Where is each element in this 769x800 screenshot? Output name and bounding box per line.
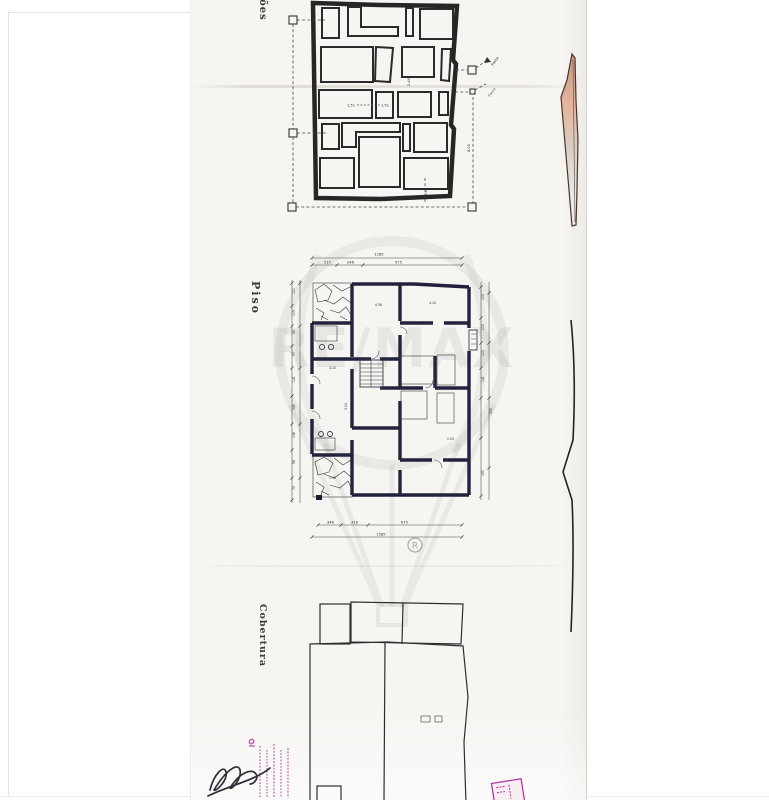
svg-text:123: 123 [481,350,485,356]
svg-text:156: 156 [292,432,296,438]
room-dim-5: 3.04 [344,403,348,410]
page-frame-left [8,10,9,797]
foundation-dim-vertical: 8.00 [467,143,471,152]
room-dim-1: 4.10 [329,366,336,370]
stamp-box-right [488,778,532,800]
fixtures-bottom-left [315,432,335,451]
svg-text:98: 98 [292,460,296,464]
floor-dim-bottom-1: 348 [327,521,335,525]
floor-dims-right: 105 115 123 141 595 163 [481,294,493,476]
speckle-hatch-1 [437,355,455,385]
stone-hatch-top-left [313,283,352,322]
svg-text:75: 75 [292,486,296,490]
floor-dims-left: 122 113 45 97 141 240 156 98 75 [292,288,296,490]
pergola-grid [320,604,350,644]
foundation-dim-small-bottom: 2.40 [424,187,428,196]
svg-text:97: 97 [292,352,296,356]
svg-text:122: 122 [292,288,296,294]
speckle-hatch-2 [437,393,454,423]
svg-text:45: 45 [292,330,296,334]
stairs [360,360,383,387]
foundation-outline [313,3,457,199]
floor-dim-bottom-3: 875 [401,521,408,525]
label-fundacoes-fragment: ções [257,0,268,21]
floor-dim-bottom-2: 328 [351,521,359,525]
sliver-top [561,54,578,226]
svg-text:141: 141 [292,376,296,382]
room-dim-6: 2.03 [447,437,454,441]
room-dim-3: 4.10 [429,301,436,305]
svg-text:240: 240 [292,404,296,410]
label-piso: Piso [249,281,262,315]
room-dim-4: 1.98 [329,476,336,480]
floor-plan-drawing: 1185 215 246 575 348 328 875 1585 122 11… [283,238,498,544]
stamp-text-left [246,736,306,800]
floor-dim-top-3: 575 [395,261,402,265]
roof-bottom-grid [317,786,341,800]
roof-upper-ridge [402,603,403,644]
roof-vent-boxes [421,716,442,722]
door-arcs [312,327,442,468]
foundation-dim-pair-right: 1.51 [381,104,389,108]
tile-hatch-1 [401,356,434,384]
floor-dim-top-total: 1185 [374,253,383,257]
sliver-bottom-line [563,320,574,632]
roof-main-section [310,642,468,800]
paper-crease-middle [190,565,584,567]
balcony [469,330,477,350]
scanned-drawing-page: RE/MAX R [0,0,769,800]
fixtures-top-left [315,326,337,350]
floor-dim-top-1: 215 [324,261,331,265]
floor-dim-top-2: 246 [347,261,355,265]
floor-walls [312,284,469,495]
svg-text:105: 105 [481,294,485,300]
svg-text:163: 163 [481,470,485,476]
foundation-dim-small-top: 2.40 [407,77,411,86]
fossa-arrow [484,57,491,63]
foundation-blocks [319,7,453,189]
roof-main-ridge [384,643,385,800]
room-dim-2: 4.58 [375,303,382,307]
page-frame-top [8,12,190,13]
fossa-label: Fossa [491,56,500,67]
fossa-label-2: Fossa [488,87,497,98]
foundation-plan-drawing: Fossa Fossa 8.00 1.51 1.51 2.40 2.40 [280,0,525,235]
svg-text:115: 115 [481,324,485,330]
roof-upper-section [351,602,463,644]
foundation-dim-pair-left: 1.51 [347,104,355,108]
fold-edge-sliver [552,40,588,640]
floor-dim-bottom-total: 1585 [376,533,385,537]
tile-hatch-2 [401,391,427,419]
svg-text:595: 595 [489,408,493,414]
svg-text:141: 141 [481,376,485,382]
roof-plan-drawing [295,592,480,800]
label-cobertura: Cobertura [257,604,268,667]
svg-text:113: 113 [292,310,296,316]
